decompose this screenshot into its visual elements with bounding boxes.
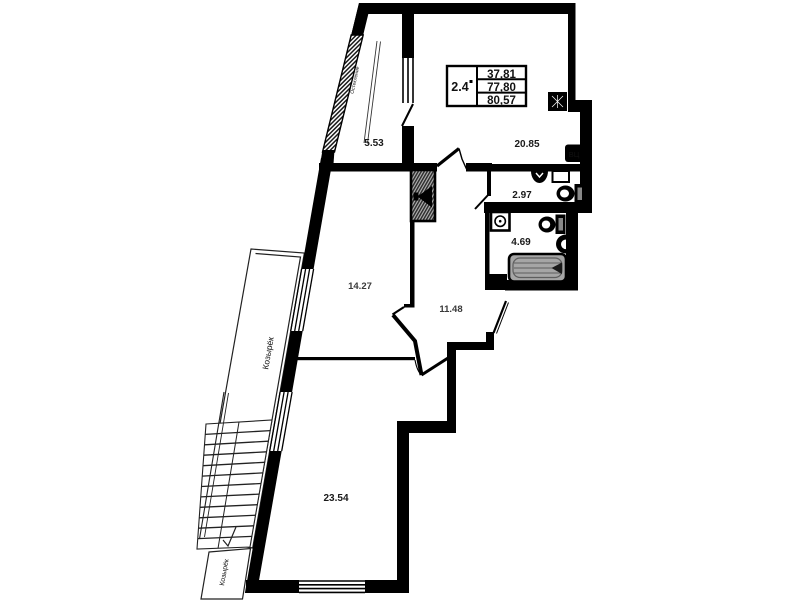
svg-text:23.54: 23.54 bbox=[323, 493, 348, 504]
svg-text:14.27: 14.27 bbox=[348, 281, 372, 292]
svg-text:ВЦ: ВЦ bbox=[569, 150, 580, 159]
svg-text:4.69: 4.69 bbox=[511, 237, 531, 248]
svg-text:2.4: 2.4 bbox=[451, 80, 468, 94]
svg-text:37,81: 37,81 bbox=[487, 69, 516, 81]
svg-text:80,57: 80,57 bbox=[487, 95, 516, 107]
svg-text:20.85: 20.85 bbox=[514, 139, 539, 150]
svg-text:5.53: 5.53 bbox=[364, 138, 384, 149]
svg-text:2.97: 2.97 bbox=[512, 190, 532, 201]
svg-text:11.48: 11.48 bbox=[439, 304, 462, 315]
svg-text:77,80: 77,80 bbox=[487, 82, 516, 94]
